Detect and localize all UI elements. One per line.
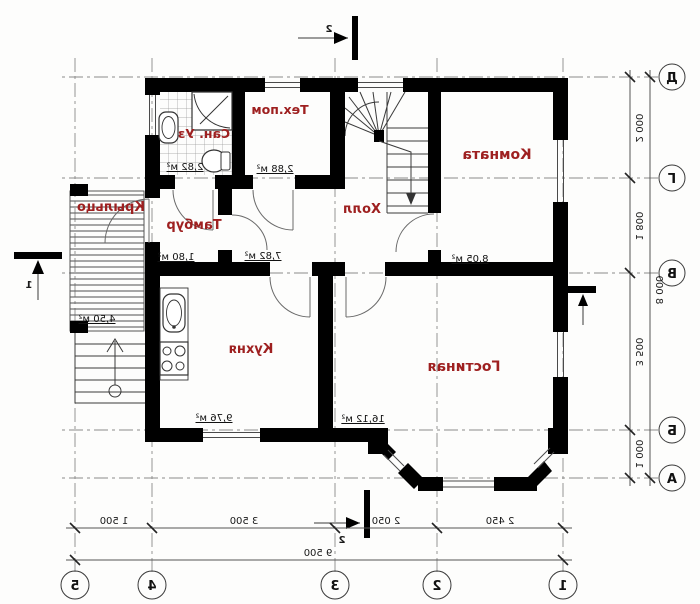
- window-top-tech: [265, 83, 300, 88]
- dim-left-total: 8 000: [653, 276, 664, 305]
- room-area-room: 8,05 м²: [452, 254, 489, 265]
- dim-bottom-3: 1 500: [100, 516, 129, 527]
- axis-letter-b: Б: [667, 424, 677, 439]
- stair-start-marker: [109, 385, 121, 397]
- room-area-porch: 4,50 м²: [79, 314, 116, 325]
- window-bath: [150, 95, 156, 135]
- axis-number-2: 2: [432, 579, 441, 594]
- section-mark-bottom: [314, 490, 370, 538]
- section-label-bottom: 2: [338, 535, 345, 546]
- door-room: [396, 214, 434, 252]
- dim-left-0: 2 000: [633, 114, 644, 143]
- axis-number-1: 1: [558, 579, 567, 594]
- wall-kitchen-living: [318, 276, 333, 442]
- room-area-kitchen: 9,76 м²: [196, 413, 233, 424]
- stair-post: [374, 130, 384, 142]
- door-living: [346, 277, 386, 317]
- axis-number-5: 5: [70, 579, 79, 594]
- dim-bottom-2: 3 500: [230, 516, 259, 527]
- axis-number-4: 4: [147, 579, 156, 594]
- kitchen-sink: [163, 294, 185, 332]
- room-area-tech: 2,88 м²: [257, 164, 294, 175]
- section-mark-left: [568, 286, 596, 325]
- porch: [70, 184, 154, 403]
- section-mark-right: [14, 252, 62, 300]
- dim-left-3: 1 000: [633, 440, 644, 469]
- window-bay-center: [443, 481, 494, 487]
- wall-room-hall: [428, 92, 441, 213]
- axis-letter-d: Д: [666, 71, 678, 86]
- room-area-tambour: 1,80 м²: [158, 252, 195, 263]
- toilet: [202, 150, 230, 172]
- wall-tech-stair: [330, 92, 345, 175]
- wall-tambour-hall: [218, 189, 232, 215]
- floor-plan-svg: Сан. Уз 2,82 м² Тех.пом 2,88 м² Тамбур 1…: [0, 0, 700, 604]
- room-label-sanuz: Сан. Уз: [178, 126, 230, 141]
- dim-left-2: 3 500: [633, 338, 644, 367]
- dim-bottom-1: 2 050: [372, 516, 401, 527]
- porch-post: [70, 184, 88, 196]
- section-mark-top: [298, 16, 358, 60]
- room-label-hall: Холл: [343, 202, 381, 217]
- room-area-hall: 7,82 м²: [245, 251, 282, 262]
- axis-letter-g: Г: [668, 172, 676, 187]
- door-tech: [253, 190, 293, 230]
- mirrored-plan-group: Сан. Уз 2,82 м² Тех.пом 2,88 м² Тамбур 1…: [14, 16, 685, 599]
- main-staircase: [345, 92, 428, 213]
- axis-letter-v: В: [667, 267, 677, 282]
- axis-letter-a: А: [667, 472, 677, 487]
- wall-bath-tech: [232, 92, 245, 175]
- dim-bottom-total: 9 500: [304, 548, 333, 559]
- door-kitchen: [270, 277, 310, 317]
- dim-bottom-0: 2 450: [486, 516, 515, 527]
- stair-direction-arrow: [406, 193, 416, 205]
- room-label-porch: Крыльцо: [77, 200, 145, 215]
- dim-left-1: 1 800: [633, 212, 644, 241]
- room-label-tech: Тех.пом: [251, 102, 308, 117]
- window-top-stair: [358, 83, 403, 88]
- room-label-kitchen: Кухня: [229, 342, 274, 357]
- section-label-top: 2: [325, 24, 332, 35]
- room-label-living: Гостиная: [428, 359, 501, 375]
- axis-number-3: 3: [330, 579, 339, 594]
- stove: [160, 342, 188, 375]
- washbasin: [159, 112, 178, 143]
- room-label-room: Комната: [462, 147, 531, 163]
- door-tambour-hall: [232, 215, 267, 250]
- shower: [192, 92, 232, 130]
- window-kitchen: [203, 433, 260, 438]
- porch-steps: [75, 333, 154, 403]
- room-label-tambour: Тамбур: [166, 218, 221, 233]
- section-label-right: 1: [25, 280, 32, 291]
- room-area-sanuz: 2,82 м²: [167, 162, 204, 173]
- room-area-living: 16,12 м²: [341, 414, 384, 425]
- floor-plan-screenshot: Сан. Уз 2,82 м² Тех.пом 2,88 м² Тамбур 1…: [0, 0, 700, 604]
